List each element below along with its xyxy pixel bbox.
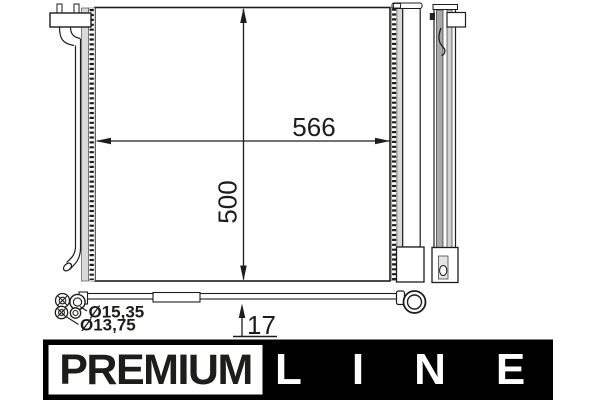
pipe-end-cap [62,262,73,273]
condenser-core [95,8,390,282]
inlet-manifold [50,4,91,27]
core-width-label: 566 [292,112,335,142]
side-view-bottom-port [440,266,447,276]
side-view-top-fitting [447,13,466,28]
pipe-bracket [153,293,200,303]
condenser-technical-drawing: 566 500 17 Ø15,35 Ø13,75 PREMIUM LINE [0,0,600,400]
right-side-plate [397,8,403,248]
side-view-core-edge-light [447,10,452,256]
right-fin-strip [391,8,397,281]
inlet-pipe [60,27,81,272]
arrowhead-up-small [239,304,246,319]
right-tank-bottom-block [397,247,425,282]
pipe-ring-eye-outer [404,291,426,313]
pipe-tube [86,294,397,300]
left-side-plate [82,8,89,281]
pipe-offset-label: 17 [247,310,276,340]
line-label: LINE [275,345,575,394]
manifold-block [50,13,91,27]
side-view-top-cap [433,5,458,10]
drawing-canvas: 566 500 17 Ø15,35 Ø13,75 PREMIUM LINE [0,0,600,400]
left-fin-strip [89,8,96,281]
premium-line-banner: PREMIUM LINE [43,340,575,400]
diameter-inner-label: Ø13,75 [80,316,136,335]
condenser-side-view [430,5,466,283]
dimension-pipe-offset: 17 [233,304,277,341]
core-height-label: 500 [213,180,243,223]
premium-label: PREMIUM [59,346,252,394]
side-view-clip [430,13,435,20]
right-header-tank [403,8,421,248]
diameter-callouts: Ø15,35 Ø13,75 [80,303,144,335]
right-tank-top-bolt [394,4,401,9]
knurled-fitting-upper [56,294,70,308]
